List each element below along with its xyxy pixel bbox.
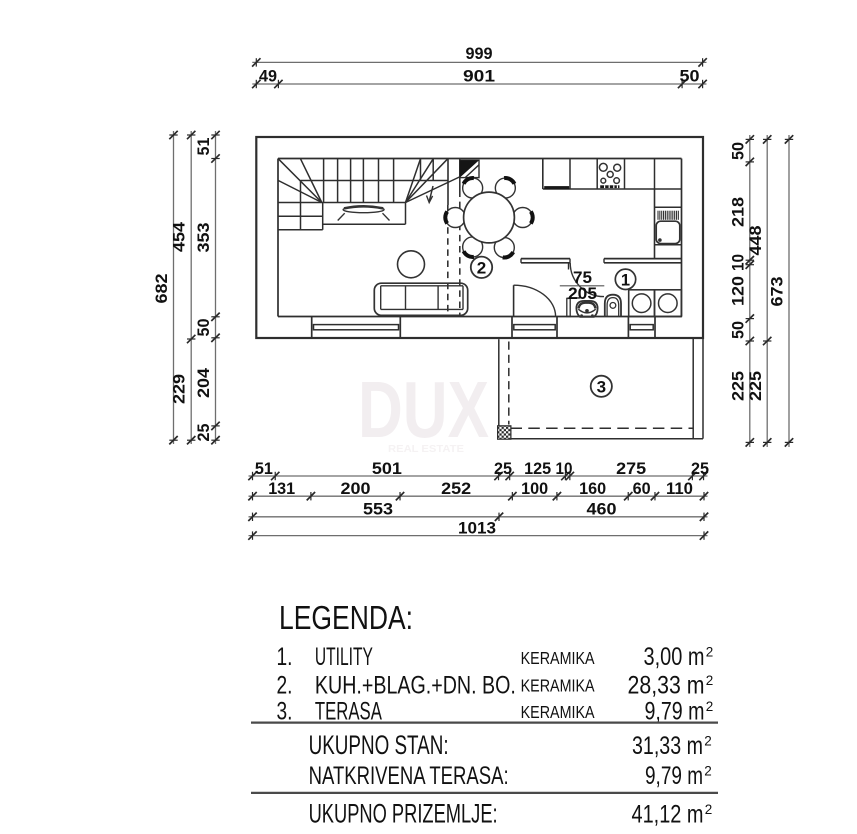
svg-text:1: 1 — [621, 271, 630, 289]
svg-text:2: 2 — [706, 645, 714, 660]
svg-text:50: 50 — [194, 319, 213, 337]
svg-text:9,79 m: 9,79 m — [645, 762, 703, 790]
svg-text:49: 49 — [259, 67, 277, 86]
svg-text:LEGENDA:: LEGENDA: — [279, 599, 413, 636]
svg-text:204: 204 — [194, 367, 213, 398]
svg-text:2: 2 — [477, 258, 486, 277]
svg-text:2.: 2. — [277, 672, 293, 700]
svg-text:205: 205 — [568, 285, 597, 303]
svg-text:252: 252 — [441, 479, 471, 498]
svg-text:10: 10 — [556, 459, 573, 478]
svg-text:454: 454 — [170, 221, 189, 252]
svg-text:2: 2 — [704, 734, 712, 749]
svg-text:1013: 1013 — [458, 519, 496, 538]
svg-text:110: 110 — [666, 479, 693, 498]
svg-text:KERAMIKA: KERAMIKA — [521, 702, 595, 722]
svg-text:60: 60 — [633, 479, 651, 498]
svg-text:KERAMIKA: KERAMIKA — [521, 676, 595, 696]
svg-text:901: 901 — [463, 67, 495, 86]
svg-text:218: 218 — [729, 197, 748, 227]
svg-text:25: 25 — [194, 424, 213, 442]
svg-text:REAL ESTATE: REAL ESTATE — [388, 443, 464, 455]
svg-text:25: 25 — [494, 459, 512, 478]
svg-text:682: 682 — [152, 274, 171, 304]
svg-text:DUX: DUX — [358, 365, 489, 454]
svg-text:200: 200 — [341, 479, 371, 498]
svg-text:UKUPNO PRIZEMLJE:: UKUPNO PRIZEMLJE: — [309, 799, 498, 829]
svg-text:TERASA: TERASA — [315, 698, 382, 726]
svg-text:UTILITY: UTILITY — [315, 643, 373, 671]
svg-text:1.: 1. — [277, 643, 293, 671]
svg-text:553: 553 — [363, 500, 393, 519]
svg-text:501: 501 — [372, 459, 402, 478]
svg-text:KERAMIKA: KERAMIKA — [521, 648, 595, 668]
svg-text:41,12 m: 41,12 m — [632, 801, 704, 829]
svg-text:448: 448 — [746, 226, 765, 256]
svg-text:3: 3 — [597, 377, 606, 396]
svg-text:2: 2 — [706, 699, 714, 714]
svg-text:10: 10 — [729, 254, 748, 271]
svg-text:275: 275 — [616, 459, 646, 478]
svg-text:2: 2 — [706, 673, 714, 688]
svg-text:673: 673 — [768, 277, 787, 307]
svg-text:131: 131 — [268, 479, 295, 498]
svg-text:353: 353 — [194, 223, 213, 253]
svg-text:229: 229 — [170, 374, 189, 404]
svg-text:50: 50 — [680, 67, 700, 86]
svg-text:50: 50 — [729, 321, 748, 339]
svg-text:50: 50 — [729, 142, 748, 160]
svg-text:225: 225 — [746, 371, 765, 401]
svg-text:3.: 3. — [277, 698, 293, 726]
svg-text:125: 125 — [524, 459, 551, 478]
svg-text:31,33 m: 31,33 m — [632, 732, 703, 760]
svg-text:460: 460 — [587, 500, 617, 519]
svg-text:100: 100 — [521, 479, 548, 498]
svg-text:9,79 m: 9,79 m — [645, 698, 705, 726]
svg-text:2: 2 — [705, 802, 713, 817]
svg-text:3,00 m: 3,00 m — [644, 643, 705, 671]
svg-text:28,33 m: 28,33 m — [628, 672, 705, 700]
svg-text:225: 225 — [729, 371, 748, 401]
svg-text:KUH.+BLAG.+DN. BO.: KUH.+BLAG.+DN. BO. — [315, 672, 516, 700]
svg-text:2: 2 — [704, 764, 712, 779]
svg-text:999: 999 — [466, 44, 493, 63]
svg-text:UKUPNO STAN:: UKUPNO STAN: — [309, 730, 449, 760]
svg-text:160: 160 — [579, 479, 606, 498]
svg-text:120: 120 — [729, 276, 748, 306]
svg-text:NATKRIVENA TERASA:: NATKRIVENA TERASA: — [309, 762, 509, 790]
svg-text:51: 51 — [255, 459, 273, 478]
svg-text:25: 25 — [691, 459, 709, 478]
svg-text:51: 51 — [194, 138, 213, 156]
